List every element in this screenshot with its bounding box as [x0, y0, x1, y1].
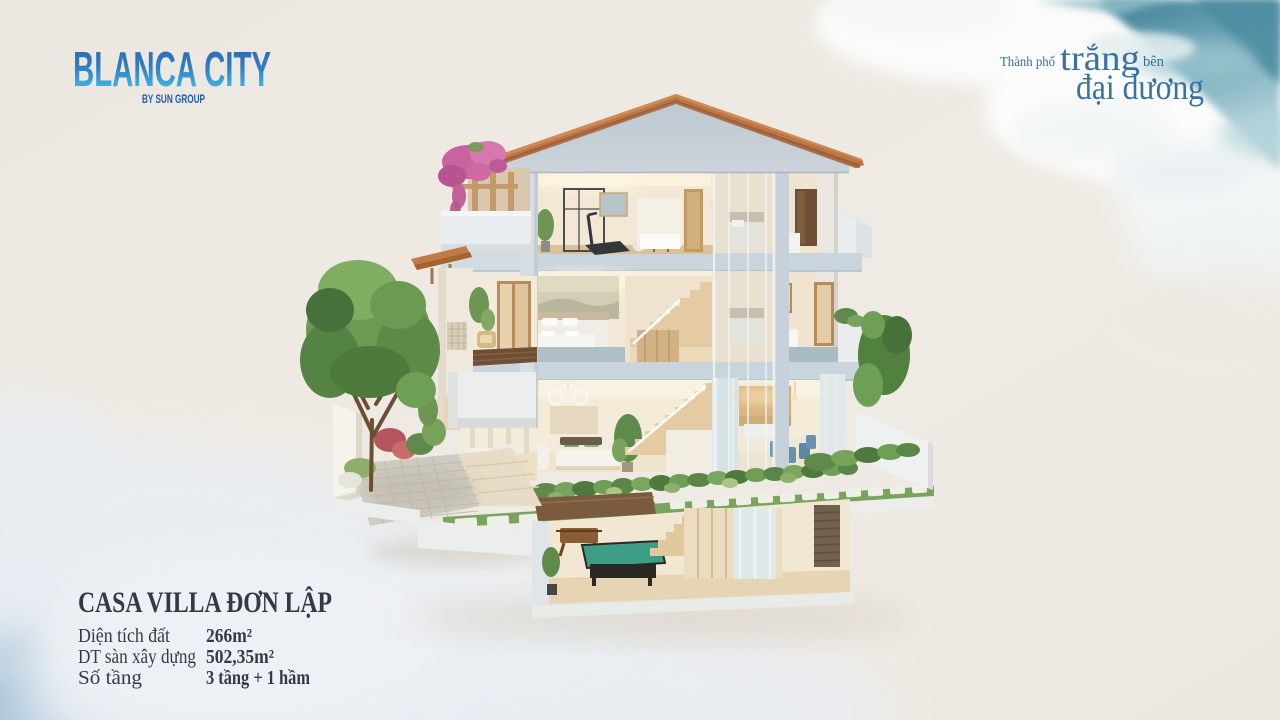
svg-text:266m²: 266m² [206, 625, 252, 647]
svg-text:3 tầng + 1 hầm: 3 tầng + 1 hầm [206, 667, 310, 689]
svg-text:Diện tích đất: Diện tích đất [78, 625, 170, 647]
svg-text:CASA VILLA ĐƠN LẬP: CASA VILLA ĐƠN LẬP [78, 586, 332, 619]
svg-text:Số tầng: Số tầng [78, 667, 142, 689]
svg-text:BY SUN GROUP: BY SUN GROUP [142, 94, 205, 106]
svg-text:đại dương: đại dương [1076, 67, 1204, 107]
svg-text:DT sàn xây dựng: DT sàn xây dựng [78, 646, 196, 668]
svg-text:Thành phố: Thành phố [1000, 55, 1055, 70]
svg-text:BLANCA CITY: BLANCA CITY [73, 43, 271, 97]
svg-text:502,35m²: 502,35m² [206, 646, 274, 668]
